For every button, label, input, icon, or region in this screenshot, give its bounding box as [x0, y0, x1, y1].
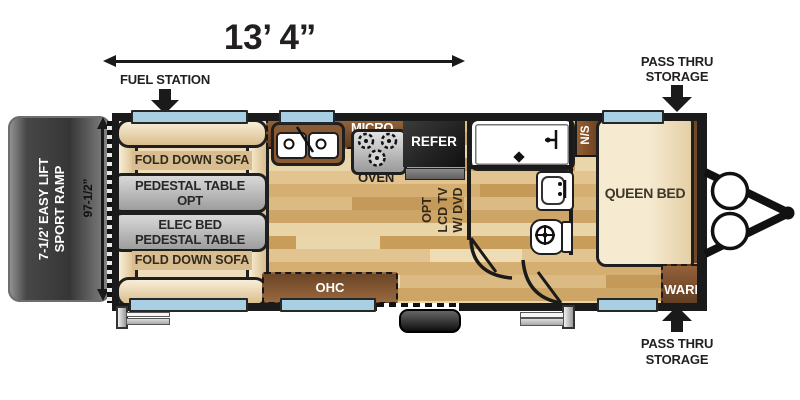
fold-down-sofa-top: FOLD DOWN SOFA: [132, 151, 252, 170]
tv-option-line1: OPT: [420, 187, 436, 232]
fuel-station-label: FUEL STATION: [105, 72, 225, 87]
refer-label: REFER: [411, 134, 457, 149]
bathroom-wall-under-tub: [467, 165, 573, 169]
entry-step-left-bottom: [126, 318, 170, 325]
bathroom-sink-basin: [541, 176, 565, 205]
floor-plank: [430, 249, 522, 262]
toilet-tank: [561, 221, 573, 253]
elec-bed-line1: ELEC BED: [158, 217, 221, 232]
wall-right: [697, 113, 707, 311]
window-bottom-bedroom: [597, 298, 658, 312]
tv-option-label: OPT LCD TV W/ DVD: [420, 187, 467, 232]
kitchen-sink-bowl-right: [308, 132, 339, 159]
pass-thru-top-label-line2: STORAGE: [627, 69, 727, 84]
tv-option-line3: W/ DVD: [451, 187, 467, 232]
window-top-kitchen: [279, 110, 335, 124]
pedestal-table-opt-line1: PEDESTAL TABLE: [135, 178, 245, 193]
oven-label: OVEN: [348, 170, 404, 185]
width-dim-arrow-right-icon: [452, 55, 465, 67]
pass-thru-bottom-label-line1: PASS THRU: [627, 336, 727, 351]
floor-plank: [296, 236, 380, 249]
pass-thru-top-arrowhead-icon: [662, 97, 692, 112]
wheel-well-dashes: [377, 303, 459, 307]
propane-tank-icon: [713, 214, 748, 249]
window-top-bedroom: [602, 110, 664, 124]
entry-step-left-top: [126, 312, 170, 317]
width-dim-arrow-left-icon: [103, 55, 116, 67]
width-dimension-line: [112, 60, 456, 63]
fold-down-sofa-bottom-label: FOLD DOWN SOFA: [135, 253, 250, 267]
queen-bed: QUEEN BED: [596, 118, 694, 267]
fold-down-sofa-top-label: FOLD DOWN SOFA: [135, 153, 250, 167]
bathroom-wall-left: [467, 118, 471, 240]
nightstand-label: N/S: [580, 125, 592, 144]
pass-thru-top-arrow-icon: [671, 85, 683, 97]
height-dimension-label: 97-1/2”: [81, 179, 95, 218]
sport-ramp-label-line1: 7-1/2’ EASY LIFT: [36, 158, 52, 260]
pass-thru-top-label-line1: PASS THRU: [627, 54, 727, 69]
height-dimension-line: [101, 127, 104, 291]
kitchen-sink-bowl-left: [276, 132, 307, 159]
pedestal-table-opt-line2: OPT: [177, 193, 203, 208]
window-top-lounge: [131, 110, 248, 124]
fold-down-sofa-bottom: FOLD DOWN SOFA: [132, 251, 252, 270]
queen-bed-label: QUEEN BED: [605, 185, 686, 201]
refrigerator: REFER: [403, 117, 465, 167]
elec-bed-line2: PEDESTAL TABLE: [135, 232, 245, 247]
entry-step-right-bottom: [520, 318, 564, 326]
sport-ramp-label: 7-1/2’ EASY LIFT SPORT RAMP: [36, 158, 68, 260]
toilet-bowl: [530, 219, 565, 255]
floor-plank: [480, 184, 538, 197]
bathtub: [469, 118, 575, 171]
sport-ramp-label-line2: SPORT RAMP: [52, 158, 68, 260]
floorplan-diagram: 13’ 4” FUEL STATION PASS THRU STORAGE PA…: [0, 0, 800, 400]
width-dimension-label: 13’ 4”: [195, 18, 345, 58]
wheel: [399, 309, 461, 333]
hitch-coupler-icon: [782, 207, 795, 220]
window-bottom-galley: [280, 298, 376, 312]
wall-left: [112, 113, 119, 311]
pass-thru-bottom-arrow-icon: [671, 321, 683, 332]
ohc-bottom-label: OHC: [316, 280, 345, 295]
window-bottom-lounge: [129, 298, 248, 312]
stove-cooktop: [351, 129, 407, 175]
refrigerator-base: [405, 168, 465, 180]
elec-bed-pedestal-table: ELEC BED PEDESTAL TABLE: [112, 212, 268, 252]
hitch-frame-icon: [705, 172, 795, 254]
pedestal-table-opt: PEDESTAL TABLE OPT: [112, 173, 268, 213]
pass-thru-bottom-label-line2: STORAGE: [627, 352, 727, 367]
tv-option-line2: LCD TV: [435, 187, 451, 232]
propane-tank-icon: [713, 174, 748, 209]
